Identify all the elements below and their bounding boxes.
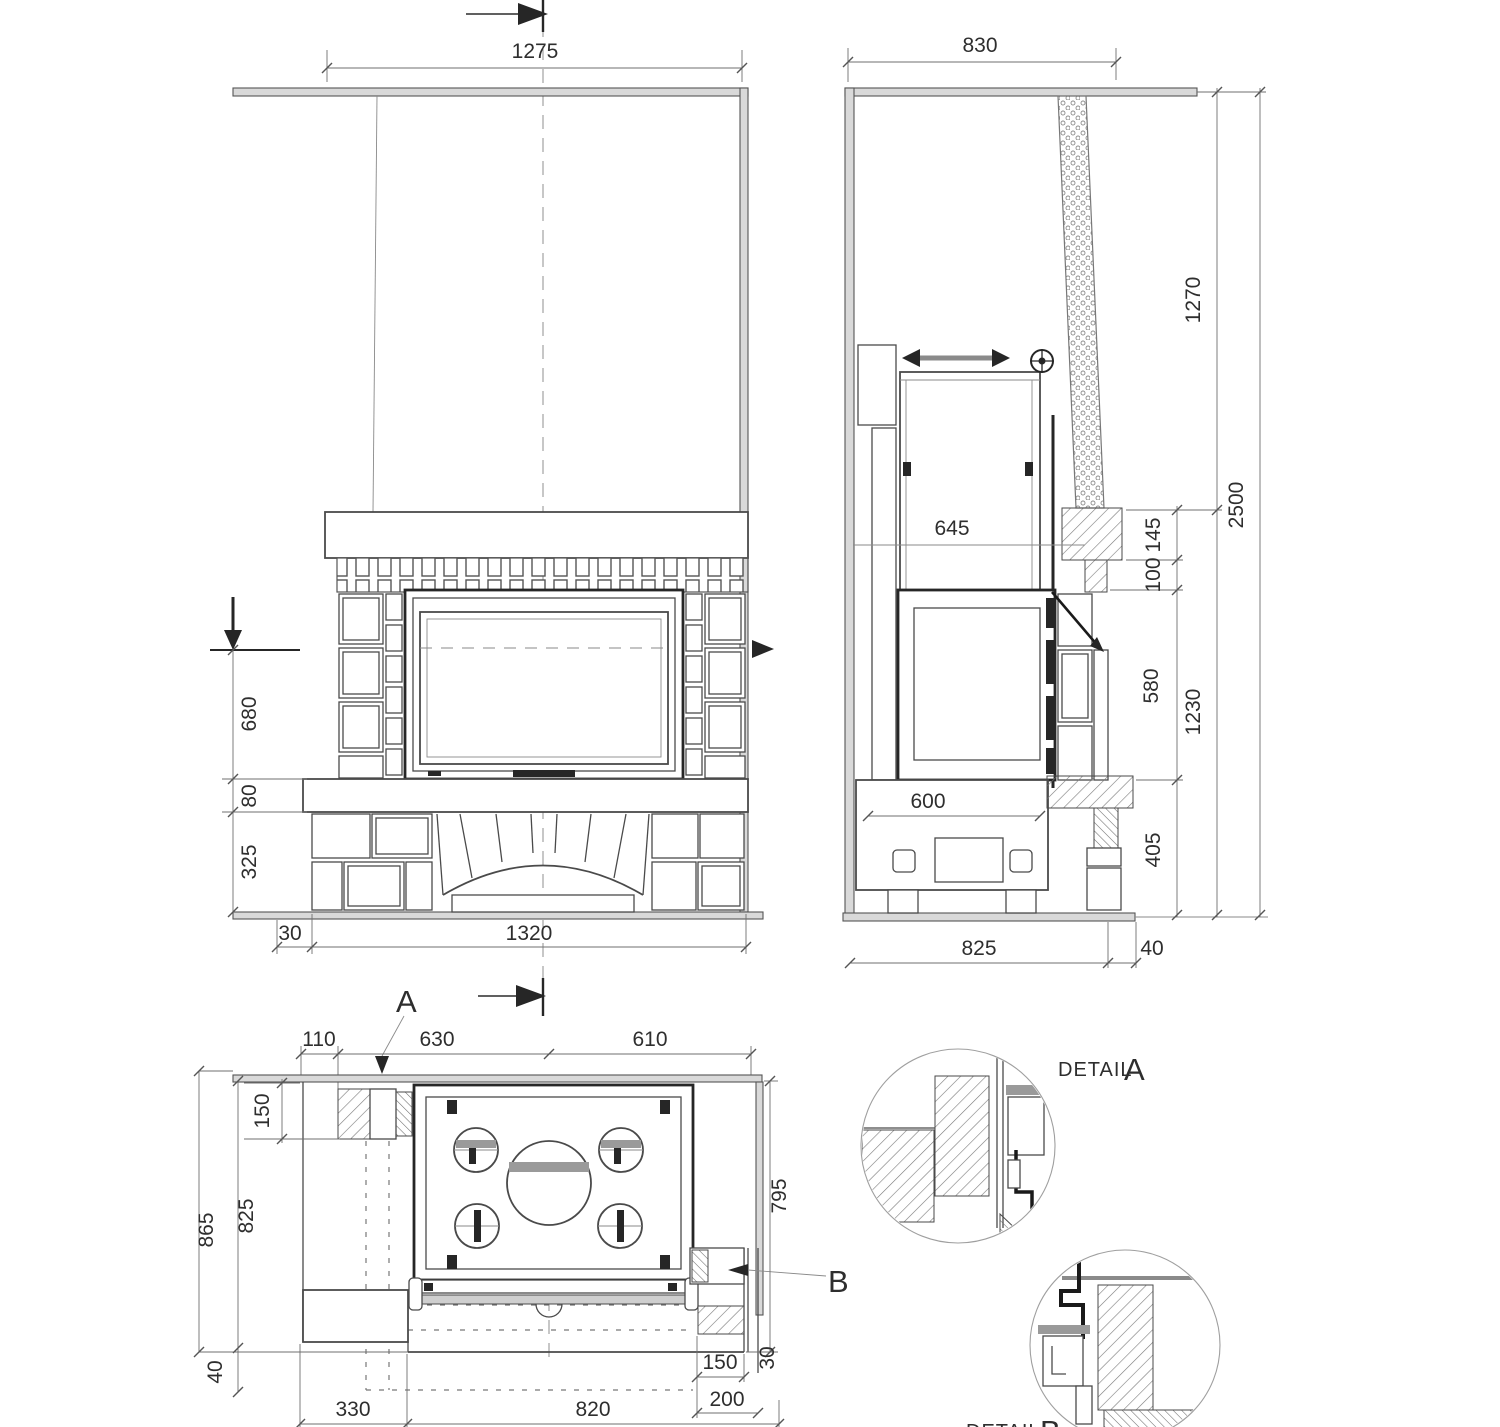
dim-plan-left-offset: 110: [302, 1028, 335, 1051]
right-brick-column: [686, 594, 745, 778]
dim-plan-right-depth: 795: [768, 1178, 791, 1213]
dim-plan-right-half: 610: [632, 1028, 667, 1051]
door-handle: [513, 770, 575, 777]
dim-side-firebox-height: 580: [1140, 668, 1163, 703]
base-masonry: [312, 814, 744, 912]
slide-arrow-icon: [902, 349, 1010, 367]
side-floor: [843, 913, 1135, 921]
stove-plan: [409, 1085, 698, 1317]
dim-side-total-height: 2500: [1225, 482, 1248, 529]
side-masonry-column: [1052, 592, 1108, 780]
dim-plan-hearth-width: 820: [575, 1398, 610, 1421]
dim-side-lower-height: 1230: [1182, 689, 1205, 736]
dim-side-lintel: 145: [1142, 517, 1165, 552]
left-brick-column: [339, 594, 402, 778]
stove-base-side: 600: [856, 780, 1048, 913]
dentil-course: [337, 558, 748, 592]
dim-front-base-height: 325: [238, 844, 261, 879]
detail-a-letter: A: [1124, 1052, 1145, 1087]
dim-plan-inner-depth: 825: [235, 1198, 258, 1233]
dim-side-inner-depth: 645: [934, 517, 969, 540]
side-wall-top: [845, 88, 1197, 96]
dim-side-gap: 100: [1142, 557, 1165, 592]
side-wall-left: [845, 88, 854, 918]
detail-b-letter: B: [1040, 1414, 1061, 1427]
dim-side-base-depth: 600: [910, 790, 945, 813]
detail-b-word: DETAIL: [966, 1421, 1041, 1427]
damper-knob-icon: [1030, 349, 1054, 373]
dim-front-top-width: 1275: [512, 40, 559, 63]
drawing-page: 1275 680 80 325 30 1320: [0, 0, 1500, 1427]
detail-b: DETAIL B: [966, 1250, 1220, 1427]
front-wall-top: [233, 88, 748, 96]
dim-front-body-width: 1320: [506, 922, 553, 945]
dim-plan-edge-gap: 30: [756, 1346, 779, 1369]
section-a-arrow-icon: [375, 1056, 389, 1074]
dim-front-side-gap: 30: [278, 922, 301, 945]
fireplace-technical-drawing: 1275 680 80 325 30 1320: [0, 0, 1500, 1427]
dim-plan-corner-depth: 200: [709, 1388, 744, 1411]
dim-side-top-depth: 830: [962, 34, 997, 57]
section-b-label: B: [828, 1264, 849, 1299]
datum-level-icon: [210, 597, 300, 650]
dim-plan-wall-thickness: 40: [204, 1360, 227, 1383]
flue-duct: [1058, 96, 1104, 508]
detail-a-word: DETAIL: [1058, 1059, 1133, 1081]
front-view: 1275 680 80 325 30 1320: [210, 0, 774, 1016]
firebox-side: [898, 590, 1055, 780]
section-a-label: A: [396, 984, 417, 1019]
firebox-front: [405, 590, 683, 779]
dim-plan-total-depth: 865: [195, 1212, 218, 1247]
side-view: 645 600: [843, 34, 1268, 968]
plan-view: A 110 630 610: [194, 978, 849, 1427]
dim-front-firebox-height: 680: [238, 696, 261, 731]
dim-plan-pier-depth: 150: [251, 1093, 274, 1128]
dim-side-base-height: 405: [1142, 832, 1165, 867]
plan-wall-right: [756, 1082, 763, 1315]
dim-side-wall-thickness: 40: [1140, 937, 1163, 960]
dim-front-hearth-thickness: 80: [238, 784, 261, 807]
dim-plan-corner-width: 150: [702, 1351, 737, 1374]
detail-a: DETAIL A: [861, 1037, 1145, 1254]
side-hearth-pier: [1047, 776, 1133, 910]
dim-side-upper-height: 1270: [1182, 277, 1205, 324]
plan-left-pier: [338, 1089, 412, 1139]
dim-side-bottom-depth: 825: [961, 937, 996, 960]
plan-corner-dimensions: 150 200: [692, 1336, 763, 1418]
dim-plan-left-half: 630: [419, 1028, 454, 1051]
section-arrow-top-icon: [466, 0, 548, 32]
dim-plan-hearth-offset: 330: [335, 1398, 370, 1421]
front-floor: [233, 912, 763, 919]
plan-wall-top: [233, 1075, 762, 1082]
mantel-shelf: [325, 512, 748, 558]
section-arrow-plan-icon: [478, 978, 546, 1016]
level-arrow-right-icon: [752, 640, 774, 658]
hearth-slab-front: [303, 779, 748, 812]
plan-right-dimensions: 795 30: [746, 1076, 791, 1370]
lintel-block: [1062, 508, 1122, 560]
